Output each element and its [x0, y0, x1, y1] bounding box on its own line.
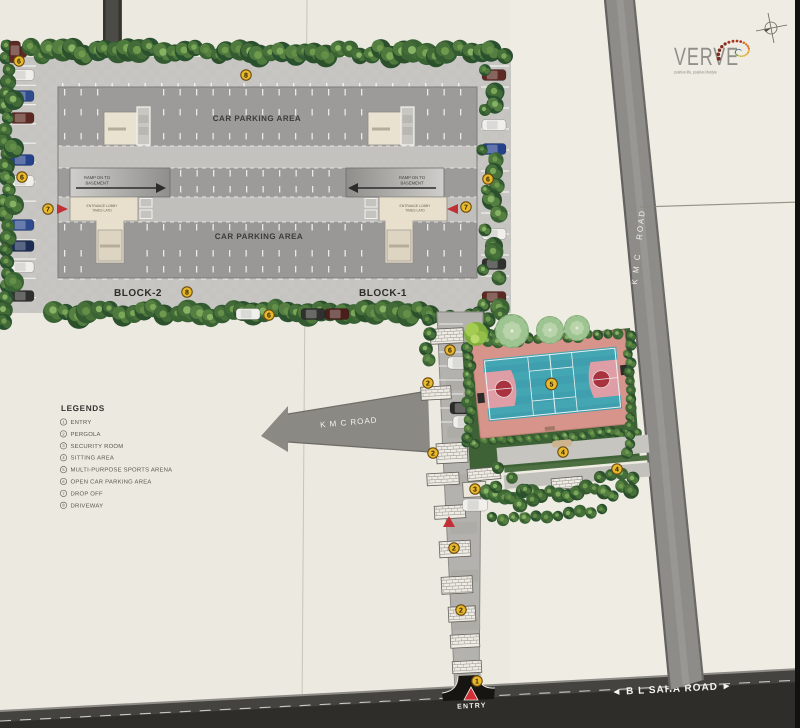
svg-text:6: 6 — [486, 176, 490, 183]
svg-text:6: 6 — [17, 58, 21, 65]
svg-text:PERGOLA: PERGOLA — [71, 431, 101, 438]
svg-text:6: 6 — [448, 347, 452, 354]
svg-text:3: 3 — [473, 486, 477, 493]
svg-text:7: 7 — [464, 204, 468, 211]
svg-text:VERVE: VERVE — [674, 43, 739, 71]
svg-text:SITTING AREA: SITTING AREA — [71, 455, 115, 462]
svg-text:ENTRANCE LOBBY: ENTRANCE LOBBY — [87, 204, 119, 208]
svg-text:LEGENDS: LEGENDS — [61, 404, 105, 413]
svg-text:RAMP DN TO: RAMP DN TO — [84, 175, 111, 180]
svg-text:DROP OFF: DROP OFF — [71, 490, 103, 497]
svg-text:BASEMENT: BASEMENT — [400, 181, 423, 186]
svg-text:2: 2 — [431, 450, 435, 457]
svg-text:MULTI-PURPOSE SPORTS ARENA: MULTI-PURPOSE SPORTS ARENA — [71, 467, 173, 474]
svg-text:BLOCK-1: BLOCK-1 — [359, 288, 407, 299]
svg-text:1: 1 — [475, 678, 479, 685]
svg-text:2: 2 — [452, 545, 456, 552]
svg-text:2: 2 — [426, 380, 430, 387]
svg-text:BASEMENT: BASEMENT — [85, 181, 108, 186]
svg-text:5: 5 — [550, 381, 554, 388]
svg-text:7: 7 — [46, 206, 50, 213]
svg-text:TIMES LATD: TIMES LATD — [92, 209, 112, 213]
svg-text:RAMP DN TO: RAMP DN TO — [399, 175, 426, 180]
svg-text:OPEN CAR PARKING AREA: OPEN CAR PARKING AREA — [71, 479, 152, 486]
svg-text:CAR PARKING AREA: CAR PARKING AREA — [215, 232, 303, 241]
svg-text:CAR PARKING AREA: CAR PARKING AREA — [213, 114, 301, 123]
svg-text:6: 6 — [20, 174, 24, 181]
svg-text:ENTRANCE LOBBY: ENTRANCE LOBBY — [400, 204, 432, 208]
svg-text:SECURITY ROOM: SECURITY ROOM — [71, 443, 124, 450]
svg-text:8: 8 — [185, 289, 189, 296]
svg-text:ENTRY: ENTRY — [71, 419, 92, 426]
svg-text:2: 2 — [459, 607, 463, 614]
svg-text:8: 8 — [244, 72, 248, 79]
svg-text:DRIVEWAY: DRIVEWAY — [71, 502, 104, 509]
svg-text:positive life, positive lifest: positive life, positive lifestyle — [674, 70, 717, 75]
svg-text:4: 4 — [615, 466, 619, 473]
svg-text:BLOCK-2: BLOCK-2 — [114, 288, 162, 299]
svg-text:6: 6 — [267, 312, 271, 319]
svg-text:4: 4 — [561, 449, 565, 456]
svg-text:TIMES LATD: TIMES LATD — [405, 209, 425, 213]
